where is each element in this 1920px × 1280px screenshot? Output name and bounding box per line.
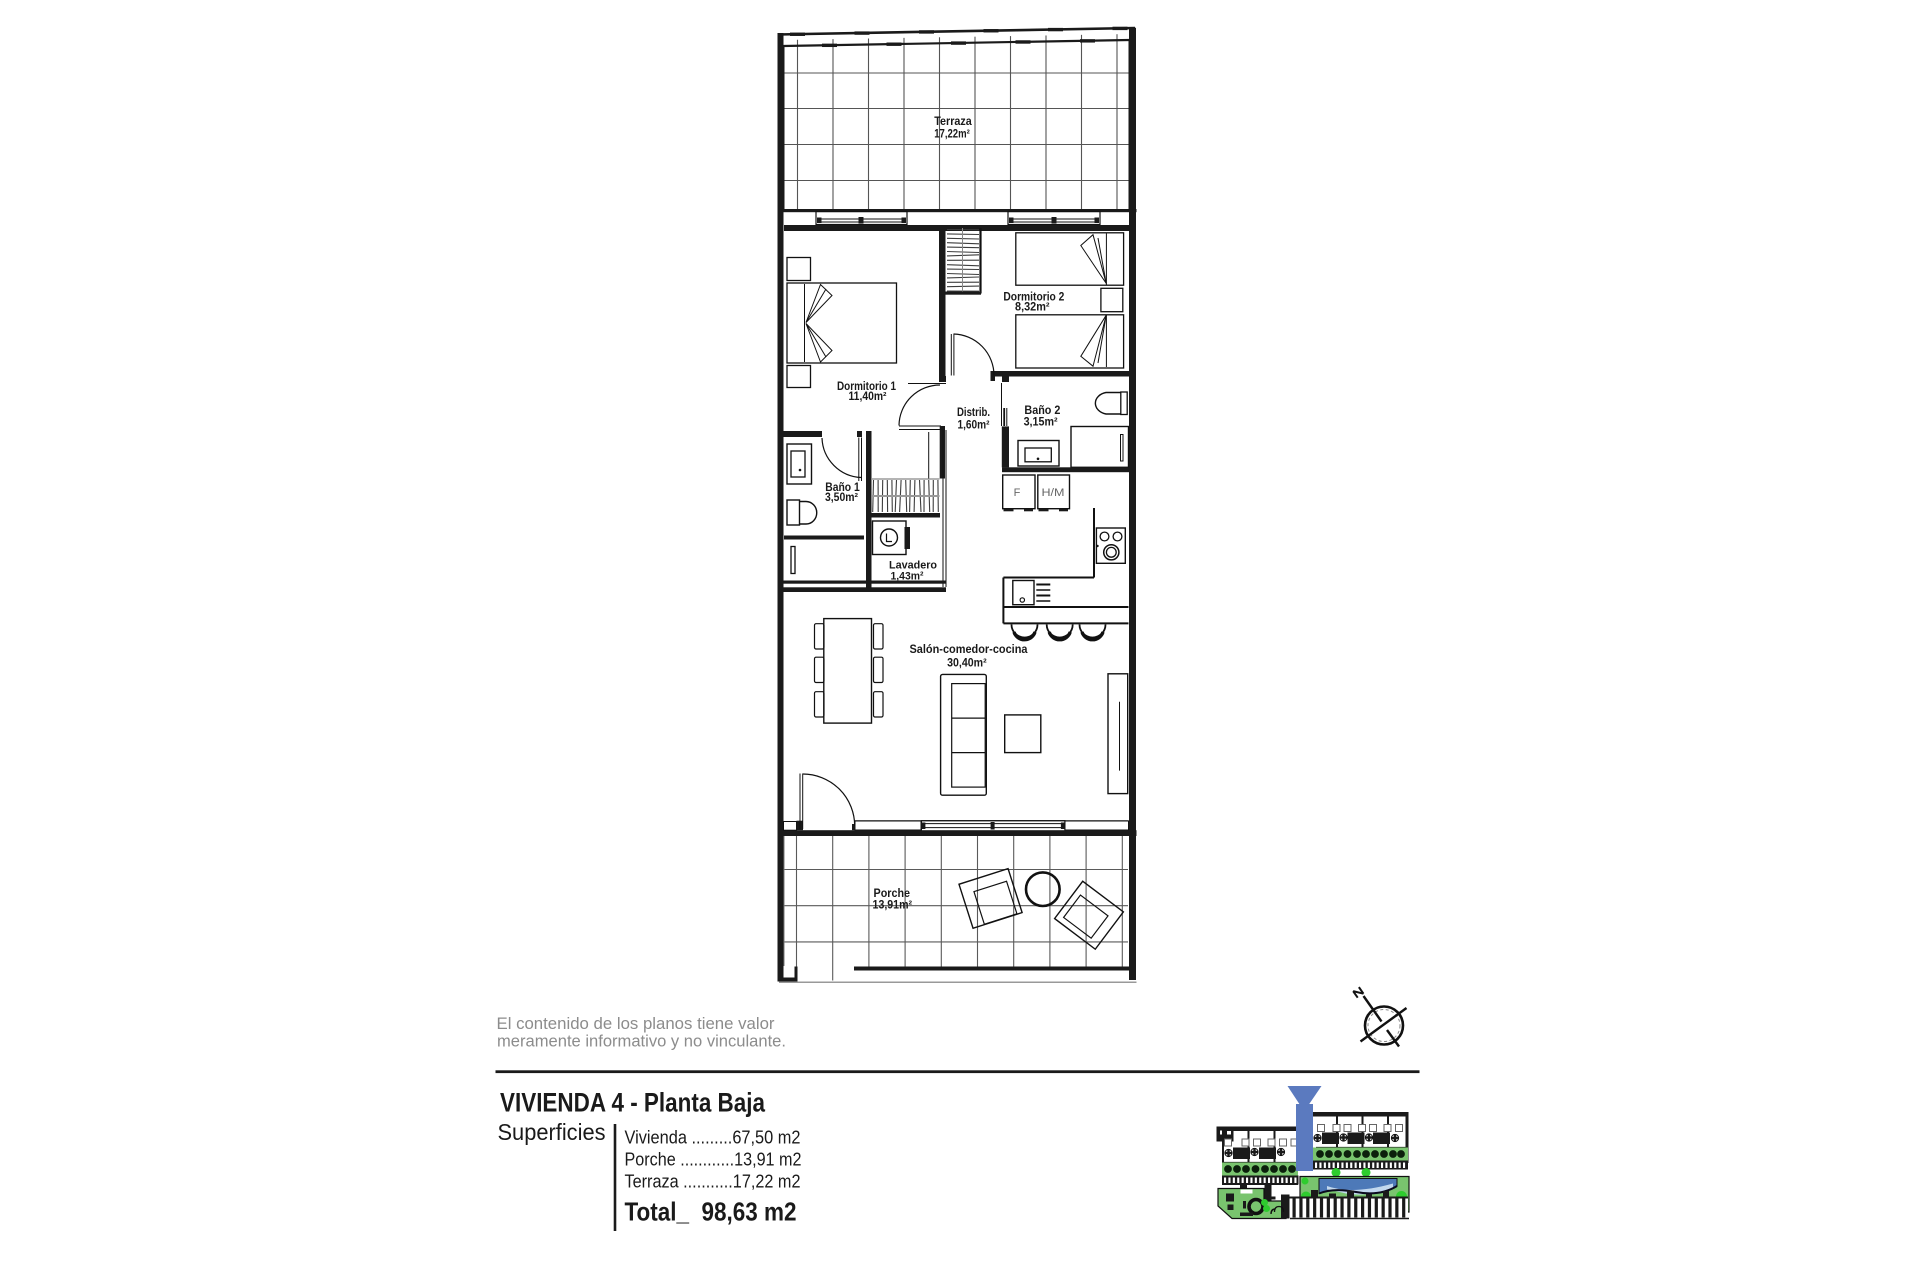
svg-text:3,15m²: 3,15m² (1024, 417, 1058, 429)
svg-text:El contenido de los planos tie: El contenido de los planos tiene valor (497, 1014, 775, 1033)
svg-text:H/M: H/M (1042, 487, 1065, 499)
svg-text:Porche: Porche (874, 888, 911, 900)
svg-text:meramente informativo y no vin: meramente informativo y no vinculante. (497, 1032, 786, 1051)
svg-text:11,40m²: 11,40m² (849, 391, 887, 403)
svg-text:13,91m²: 13,91m² (873, 900, 913, 912)
svg-text:Vivienda .........67,50 m2: Vivienda .........67,50 m2 (625, 1127, 801, 1148)
svg-text:Distrib.: Distrib. (957, 407, 990, 419)
svg-text:Porche ............13,91 m2: Porche ............13,91 m2 (625, 1149, 802, 1170)
svg-text:Salón-comedor-cocina: Salón-comedor-cocina (910, 644, 1029, 656)
svg-text:30,40m²: 30,40m² (947, 658, 987, 670)
svg-text:Total_ 98,63 m2: Total_ 98,63 m2 (625, 1197, 797, 1227)
svg-text:VIVIENDA 4 - Planta Baja: VIVIENDA 4 - Planta Baja (500, 1088, 766, 1118)
svg-text:Superficies: Superficies (498, 1119, 606, 1145)
svg-text:F: F (1014, 487, 1021, 499)
svg-text:Terraza ...........17,22 m2: Terraza ...........17,22 m2 (625, 1171, 801, 1192)
svg-text:8,32m²: 8,32m² (1015, 302, 1050, 314)
svg-text:1,60m²: 1,60m² (958, 420, 990, 432)
svg-text:Baño 2: Baño 2 (1024, 405, 1060, 417)
svg-text:Terraza: Terraza (934, 116, 972, 128)
svg-text:17,22m²: 17,22m² (934, 129, 970, 141)
svg-text:3,50m²: 3,50m² (825, 492, 858, 504)
